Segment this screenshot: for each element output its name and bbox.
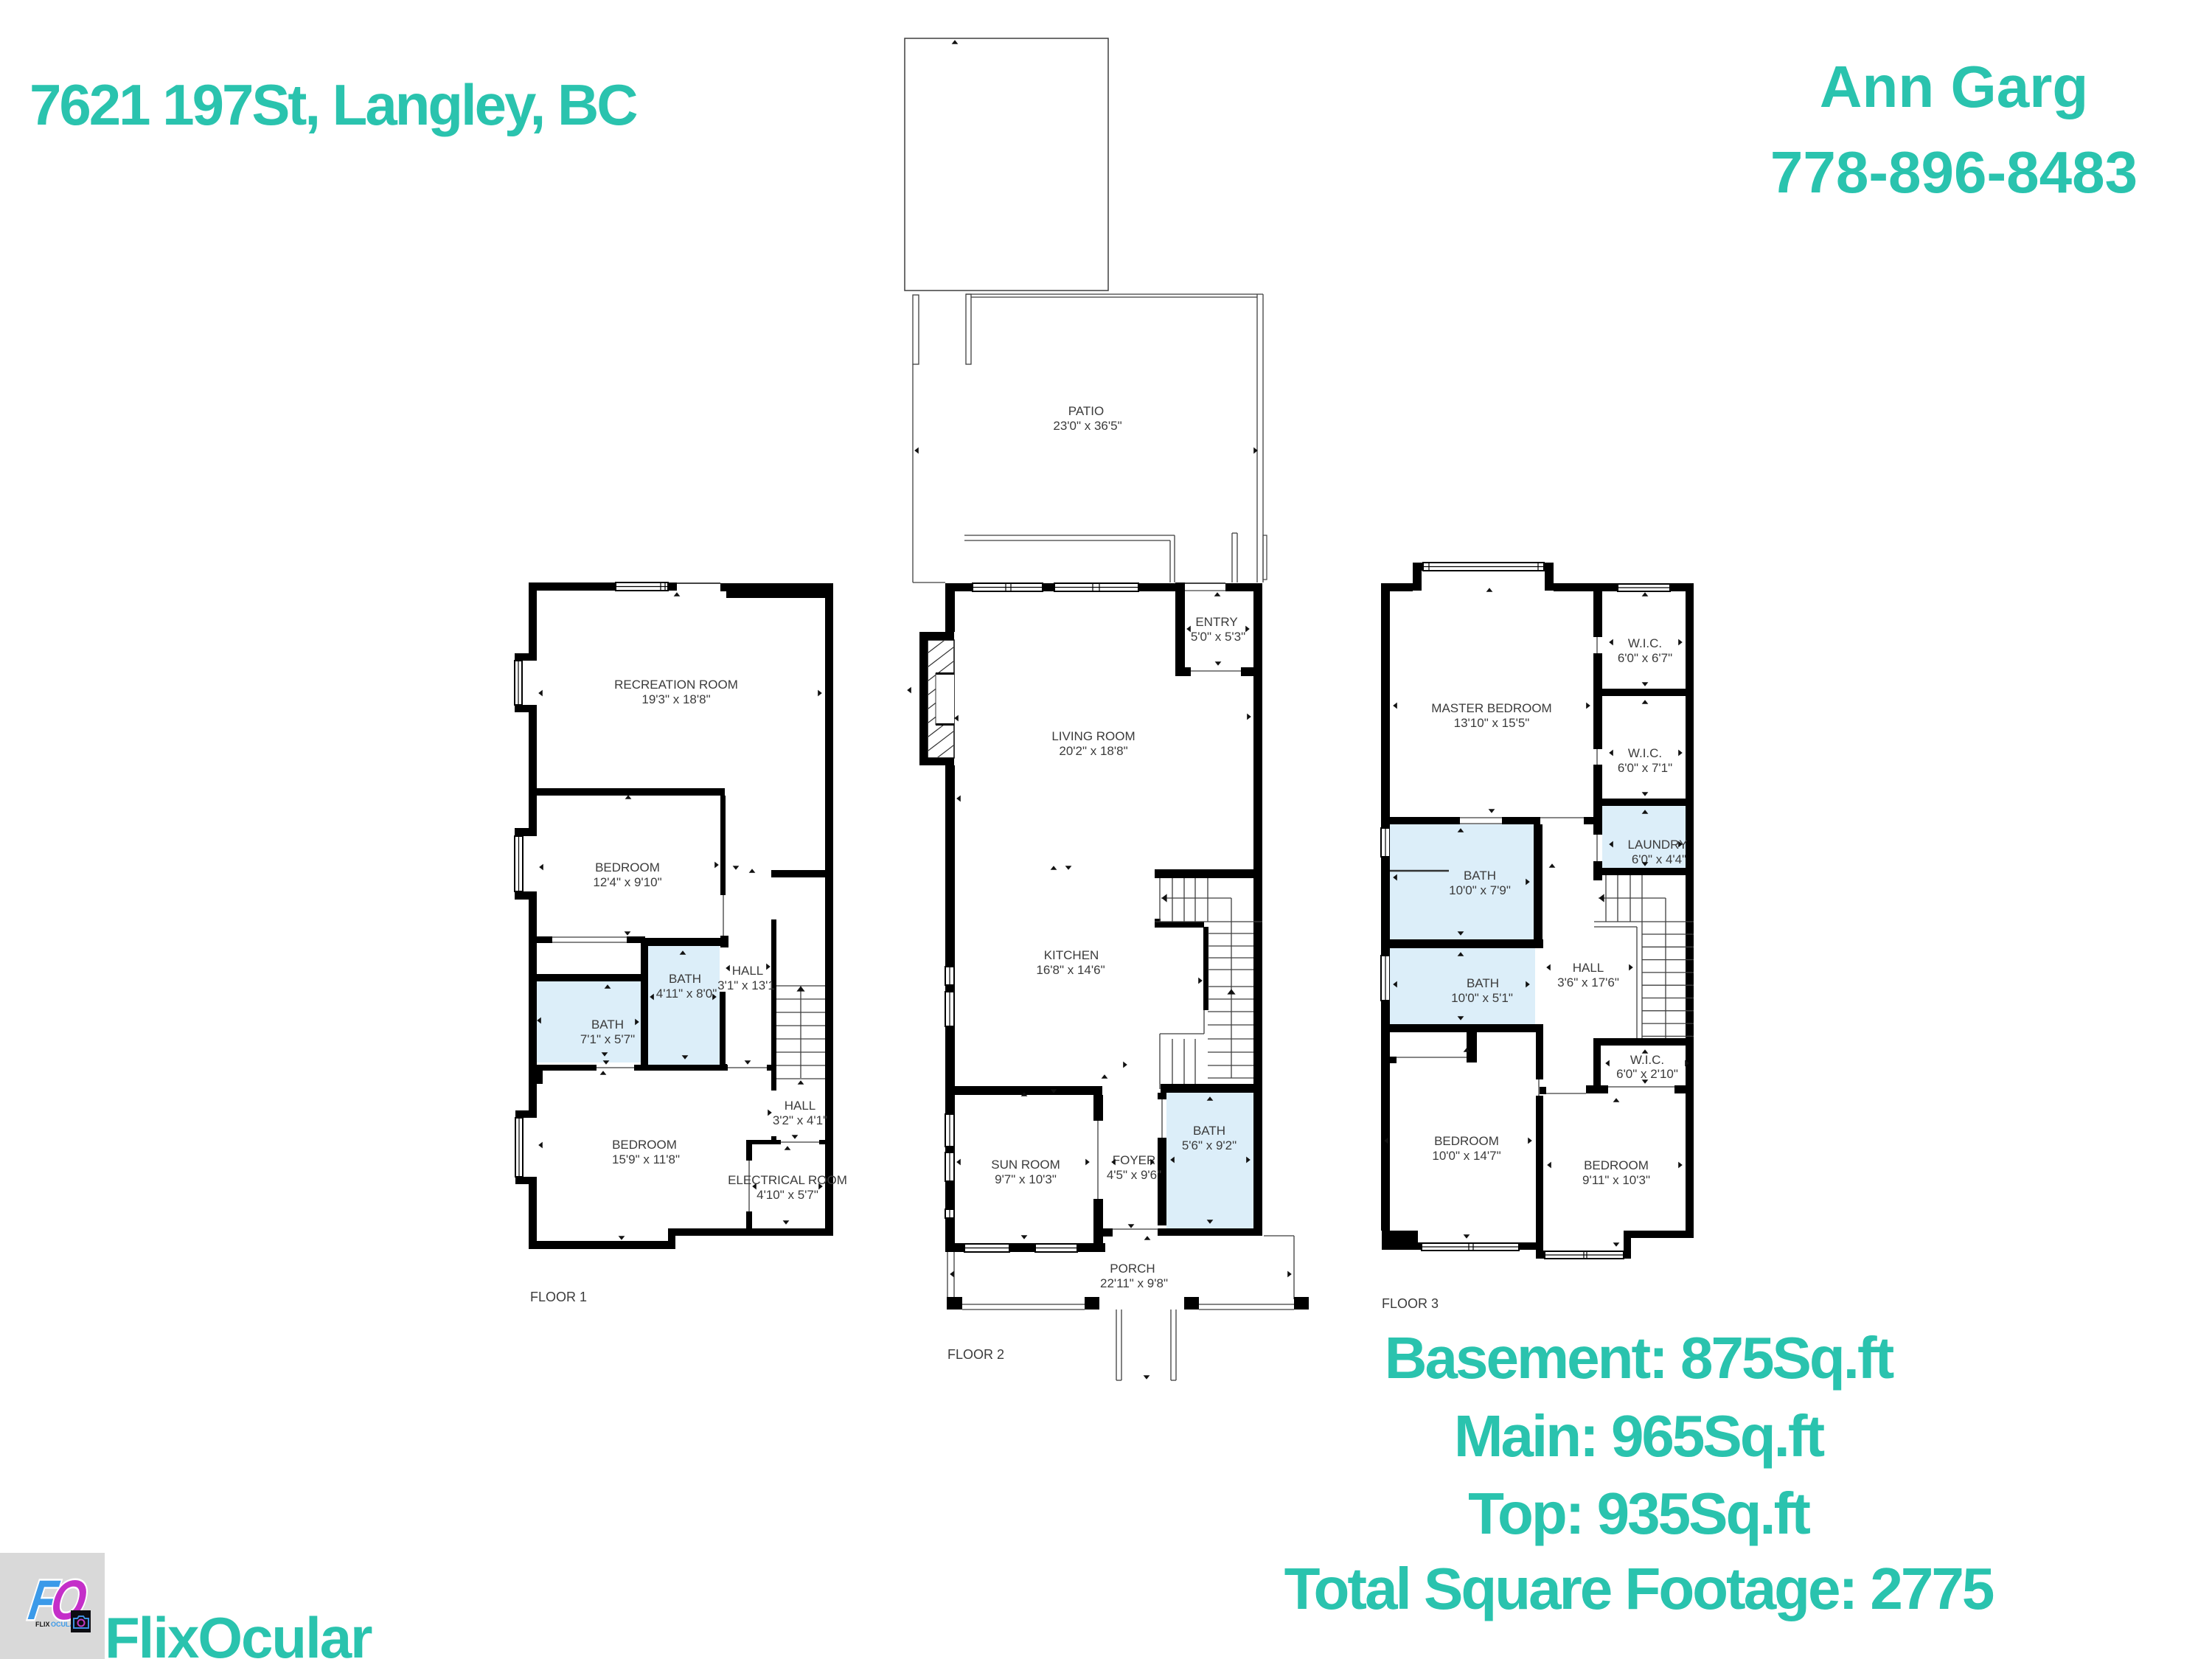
svg-text:5'0" x 5'3": 5'0" x 5'3" bbox=[1191, 630, 1245, 644]
svg-text:SUN ROOM: SUN ROOM bbox=[991, 1158, 1060, 1172]
svg-text:BEDROOM: BEDROOM bbox=[612, 1138, 677, 1152]
svg-text:BEDROOM: BEDROOM bbox=[595, 860, 660, 874]
svg-text:W.I.C.: W.I.C. bbox=[1628, 636, 1662, 650]
svg-text:3'2" x 4'1": 3'2" x 4'1" bbox=[773, 1113, 827, 1127]
svg-text:13'10" x 15'5": 13'10" x 15'5" bbox=[1454, 716, 1530, 730]
svg-text:FLOOR 3: FLOOR 3 bbox=[1382, 1296, 1439, 1311]
svg-text:MASTER BEDROOM: MASTER BEDROOM bbox=[1431, 701, 1551, 715]
svg-text:HALL: HALL bbox=[732, 964, 764, 978]
svg-text:BATH: BATH bbox=[591, 1018, 624, 1032]
svg-text:ELECTRICAL ROOM: ELECTRICAL ROOM bbox=[728, 1173, 847, 1187]
svg-text:FLOOR 1: FLOOR 1 bbox=[530, 1290, 587, 1304]
svg-text:6'0" x 4'4": 6'0" x 4'4" bbox=[1632, 852, 1686, 866]
svg-text:BATH: BATH bbox=[1467, 976, 1499, 990]
svg-text:BATH: BATH bbox=[1193, 1124, 1225, 1138]
svg-text:FLIX: FLIX bbox=[35, 1621, 50, 1628]
svg-text:6'0" x 2'10": 6'0" x 2'10" bbox=[1616, 1067, 1678, 1081]
svg-text:BATH: BATH bbox=[1464, 869, 1496, 883]
svg-text:4'11" x 8'0": 4'11" x 8'0" bbox=[656, 987, 717, 1001]
svg-text:5'6" x 9'2": 5'6" x 9'2" bbox=[1182, 1138, 1237, 1152]
svg-text:BATH: BATH bbox=[669, 972, 701, 986]
svg-text:FOYER: FOYER bbox=[1113, 1153, 1156, 1167]
svg-text:W.I.C.: W.I.C. bbox=[1628, 746, 1662, 760]
svg-text:22'11" x 9'8": 22'11" x 9'8" bbox=[1100, 1276, 1168, 1290]
svg-text:HALL: HALL bbox=[1573, 961, 1604, 975]
svg-text:10'0" x 14'7": 10'0" x 14'7" bbox=[1432, 1149, 1500, 1163]
svg-text:W.I.C.: W.I.C. bbox=[1630, 1053, 1664, 1067]
svg-text:19'3" x 18'8": 19'3" x 18'8" bbox=[641, 692, 710, 706]
svg-text:BEDROOM: BEDROOM bbox=[1584, 1158, 1649, 1172]
svg-text:BEDROOM: BEDROOM bbox=[1434, 1134, 1499, 1148]
svg-text:12'4" x 9'10": 12'4" x 9'10" bbox=[593, 875, 661, 889]
svg-text:3'6" x 17'6": 3'6" x 17'6" bbox=[1557, 975, 1619, 990]
svg-text:4'5" x 9'6": 4'5" x 9'6" bbox=[1107, 1168, 1161, 1182]
svg-text:9'7" x 10'3": 9'7" x 10'3" bbox=[995, 1172, 1057, 1186]
svg-text:9'11" x 10'3": 9'11" x 10'3" bbox=[1582, 1173, 1650, 1187]
svg-text:3'1" x 13'1: 3'1" x 13'1 bbox=[717, 978, 775, 992]
svg-text:15'9" x 11'8": 15'9" x 11'8" bbox=[612, 1152, 680, 1166]
svg-text:FLOOR 2: FLOOR 2 bbox=[947, 1347, 1004, 1362]
svg-text:20'2" x 18'8": 20'2" x 18'8" bbox=[1059, 744, 1127, 758]
svg-text:23'0" x 36'5": 23'0" x 36'5" bbox=[1053, 419, 1121, 433]
svg-text:6'0" x 7'1": 6'0" x 7'1" bbox=[1618, 761, 1672, 775]
svg-text:4'10" x 5'7": 4'10" x 5'7" bbox=[757, 1188, 818, 1202]
svg-text:16'8" x 14'6": 16'8" x 14'6" bbox=[1036, 963, 1105, 977]
svg-text:10'0" x 7'9": 10'0" x 7'9" bbox=[1449, 883, 1511, 897]
svg-text:LIVING ROOM: LIVING ROOM bbox=[1051, 729, 1135, 743]
svg-text:PORCH: PORCH bbox=[1110, 1262, 1155, 1276]
svg-text:KITCHEN: KITCHEN bbox=[1044, 948, 1099, 962]
svg-text:10'0" x 5'1": 10'0" x 5'1" bbox=[1451, 991, 1513, 1005]
svg-text:RECREATION ROOM: RECREATION ROOM bbox=[614, 678, 738, 692]
svg-text:PATIO: PATIO bbox=[1068, 404, 1105, 418]
svg-text:7'1" x 5'7": 7'1" x 5'7" bbox=[580, 1032, 635, 1046]
svg-text:ENTRY: ENTRY bbox=[1195, 615, 1237, 629]
svg-text:HALL: HALL bbox=[785, 1099, 816, 1113]
svg-text:6'0" x 6'7": 6'0" x 6'7" bbox=[1618, 651, 1672, 665]
